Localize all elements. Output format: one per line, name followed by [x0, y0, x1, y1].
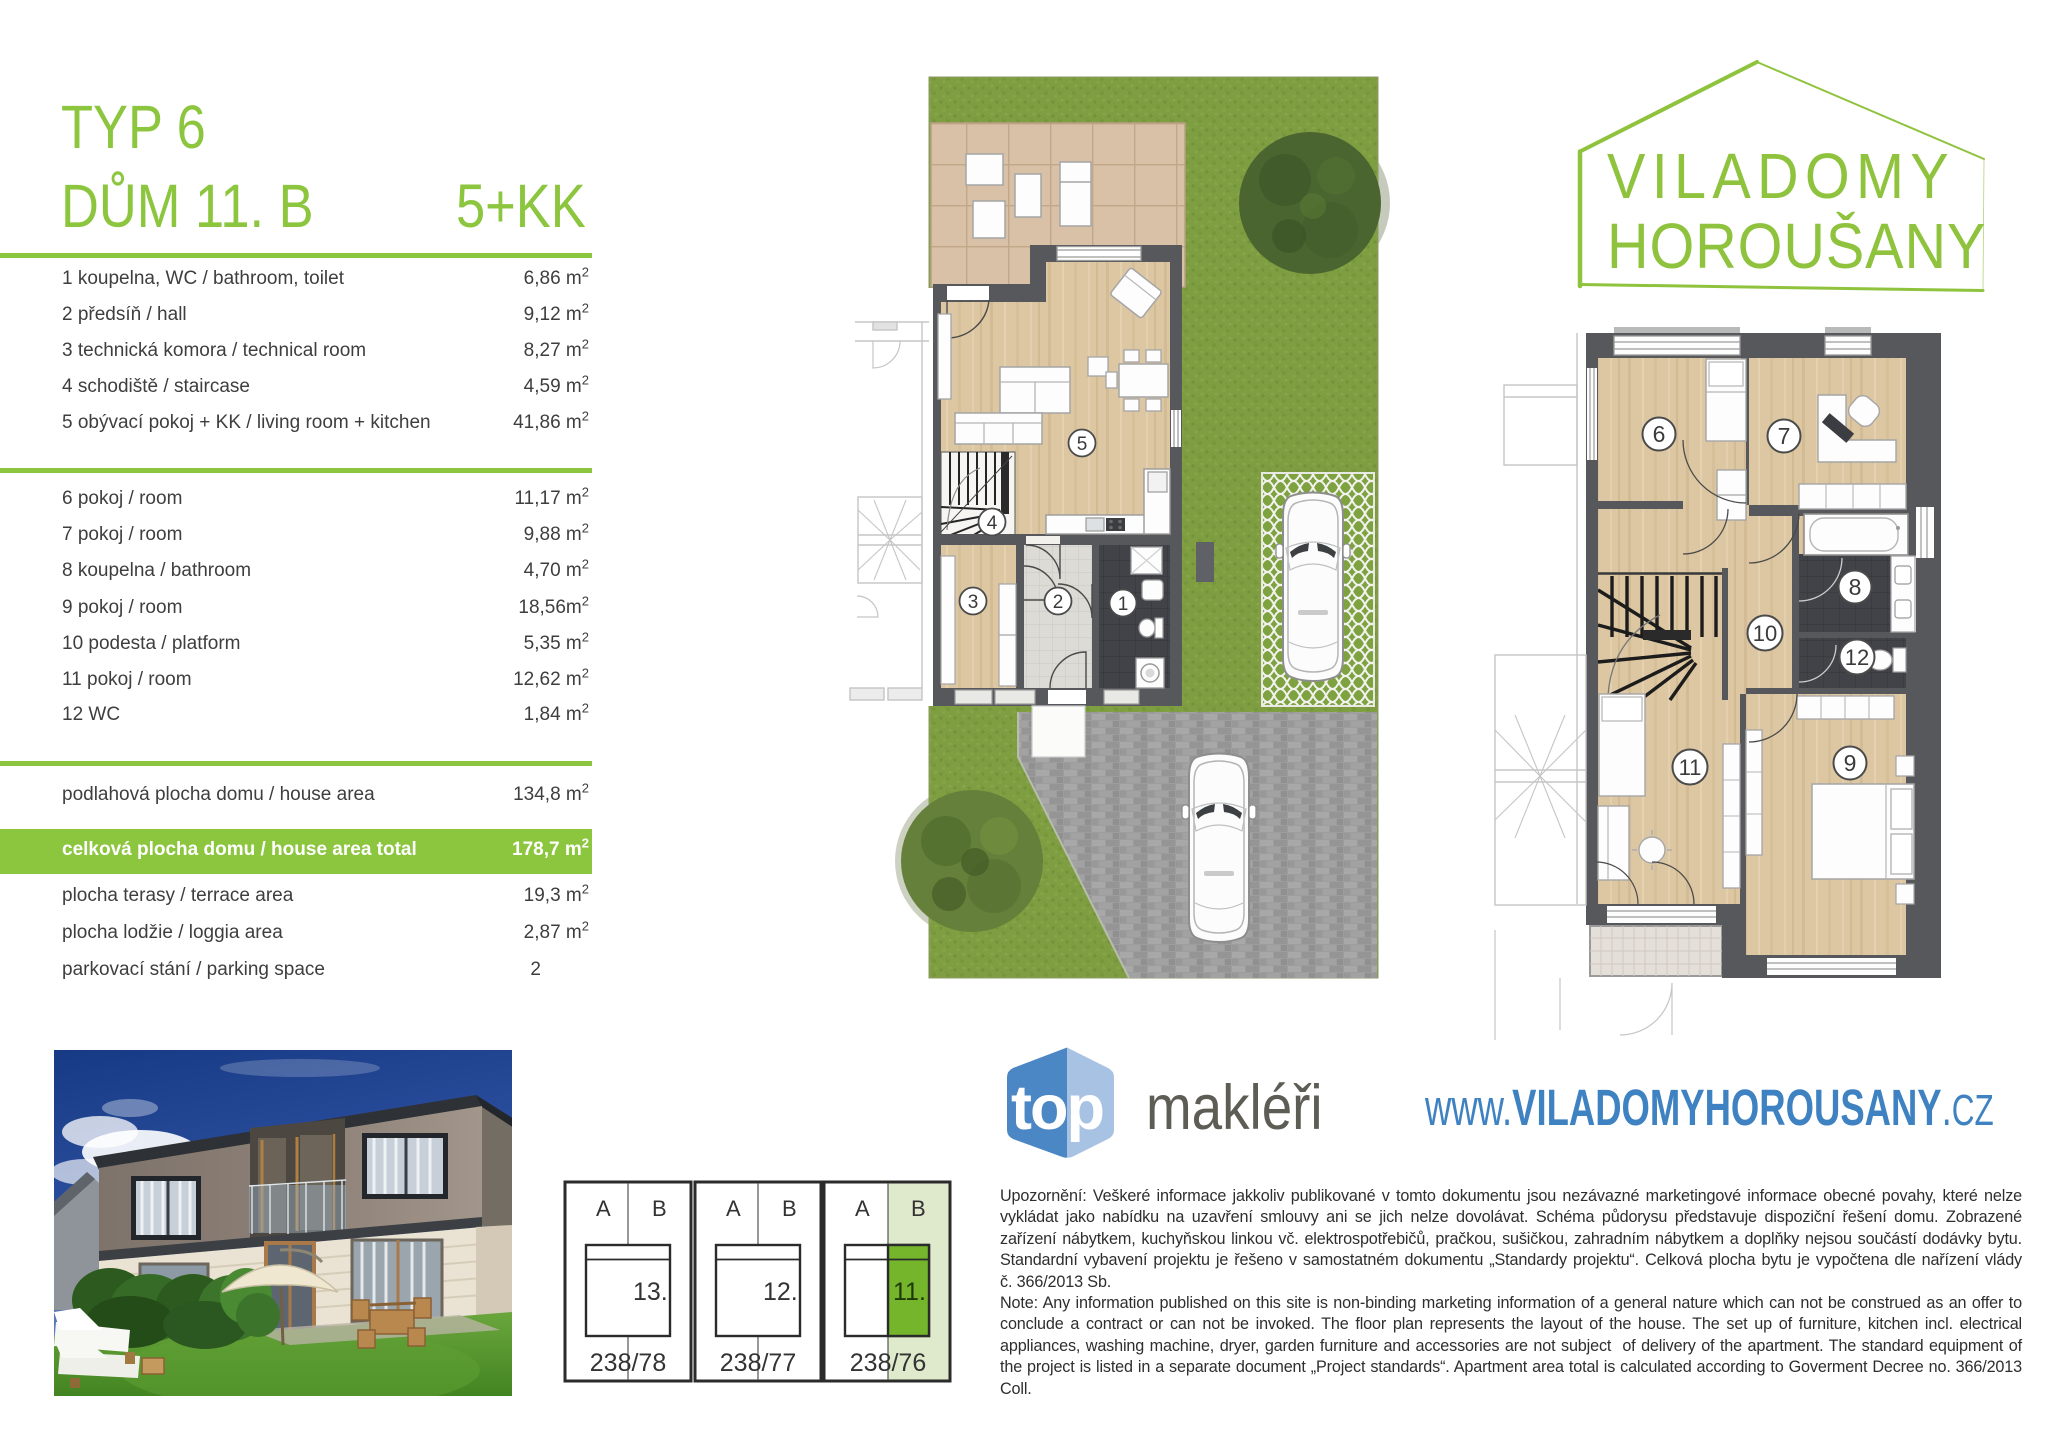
svg-text:makléři: makléři [1146, 1072, 1323, 1142]
svg-text:10: 10 [1753, 621, 1777, 646]
svg-text:B: B [652, 1196, 667, 1221]
svg-text:238/77: 238/77 [720, 1349, 796, 1377]
svg-text:11: 11 [1679, 755, 1702, 780]
svg-text:11.: 11. [893, 1278, 926, 1306]
svg-text:A: A [596, 1196, 611, 1221]
svg-text:12.: 12. [763, 1278, 798, 1306]
svg-text:3: 3 [968, 592, 979, 613]
svg-text:8: 8 [1849, 574, 1862, 600]
svg-text:238/78: 238/78 [590, 1349, 666, 1377]
svg-text:9: 9 [1844, 750, 1857, 776]
svg-text:A: A [726, 1196, 741, 1221]
svg-text:HOROUŠANY: HOROUŠANY [1607, 210, 1986, 281]
svg-text:A: A [855, 1196, 870, 1221]
svg-text:13.: 13. [633, 1278, 668, 1306]
svg-text:7: 7 [1778, 423, 1791, 449]
svg-text:5: 5 [1077, 434, 1088, 455]
svg-text:1: 1 [1118, 594, 1129, 615]
svg-text:4: 4 [987, 513, 998, 534]
svg-text:2: 2 [1053, 592, 1064, 613]
svg-text:B: B [911, 1196, 926, 1221]
svg-text:B: B [782, 1196, 797, 1221]
svg-text:6: 6 [1653, 421, 1666, 447]
svg-text:238/76: 238/76 [850, 1349, 926, 1377]
svg-text:VILADOMY: VILADOMY [1607, 140, 1955, 211]
svg-text:12: 12 [1845, 645, 1869, 670]
svg-text:top: top [1011, 1073, 1103, 1143]
